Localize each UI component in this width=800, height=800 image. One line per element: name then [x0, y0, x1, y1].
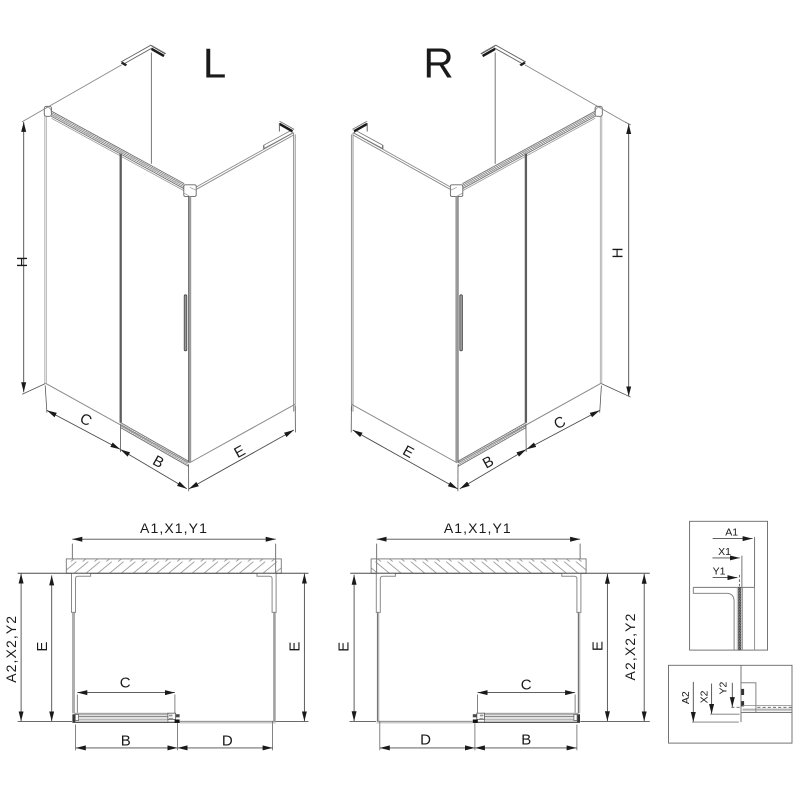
svg-text:A2: A2 [680, 691, 692, 704]
svg-text:E: E [287, 642, 304, 652]
svg-text:A1: A1 [725, 527, 738, 539]
svg-text:A2,X2,Y2: A2,X2,Y2 [3, 615, 19, 683]
svg-text:E: E [34, 642, 51, 652]
svg-text:D: D [222, 732, 233, 749]
svg-text:A2,X2,Y2: A2,X2,Y2 [622, 613, 638, 681]
svg-text:X2: X2 [698, 690, 710, 703]
svg-text:E: E [336, 642, 353, 652]
svg-text:H: H [14, 257, 31, 268]
svg-text:Y2: Y2 [718, 682, 730, 695]
svg-text:C: C [120, 675, 131, 692]
svg-text:B: B [121, 732, 131, 749]
svg-text:H: H [610, 248, 627, 259]
svg-text:X1: X1 [718, 546, 731, 558]
svg-text:A1,X1,Y1: A1,X1,Y1 [140, 520, 208, 536]
svg-text:E: E [590, 641, 607, 651]
svg-text:D: D [420, 732, 431, 749]
svg-text:C: C [521, 677, 532, 694]
svg-text:Y1: Y1 [713, 566, 726, 578]
svg-text:R: R [423, 39, 453, 86]
svg-text:B: B [521, 732, 531, 749]
svg-text:L: L [203, 39, 226, 86]
svg-text:A1,X1,Y1: A1,X1,Y1 [444, 520, 512, 536]
